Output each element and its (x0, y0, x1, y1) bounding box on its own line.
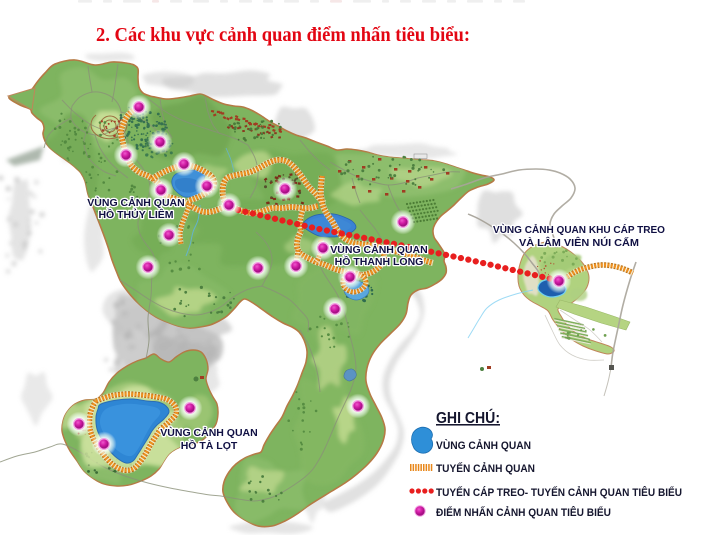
svg-text:TUYẾN CÁP TREO- TUYẾN CẢNH QUA: TUYẾN CÁP TREO- TUYẾN CẢNH QUAN TIÊU BIỂ… (436, 486, 682, 499)
svg-text:VÀ LÂM VIÊN NÚI CẤM: VÀ LÂM VIÊN NÚI CẤM (519, 236, 639, 249)
svg-text:2. Các khu vực cảnh quan điểm: 2. Các khu vực cảnh quan điểm nhấn tiêu … (96, 25, 470, 46)
svg-text:TUYẾN CẢNH QUAN: TUYẾN CẢNH QUAN (436, 462, 535, 475)
svg-text:HỒ TÀ LỌT: HỒ TÀ LỌT (181, 439, 238, 452)
svg-text:VÙNG CẢNH QUAN: VÙNG CẢNH QUAN (87, 196, 184, 209)
svg-text:VÙNG CẢNH QUAN KHU CÁP TREO: VÙNG CẢNH QUAN KHU CÁP TREO (493, 223, 665, 236)
svg-text:HỒ THANH LONG: HỒ THANH LONG (335, 255, 424, 268)
svg-text:ĐIỂM NHẤN CẢNH QUAN TIÊU BIỂU: ĐIỂM NHẤN CẢNH QUAN TIÊU BIỂU (436, 506, 611, 519)
svg-text:HỒ THỦY LIÊM: HỒ THỦY LIÊM (98, 208, 173, 221)
svg-text:VÙNG CẢNH QUAN: VÙNG CẢNH QUAN (330, 243, 427, 256)
svg-text:VÙNG CẢNH QUAN: VÙNG CẢNH QUAN (160, 426, 257, 439)
svg-text:VÙNG CẢNH QUAN: VÙNG CẢNH QUAN (436, 439, 531, 452)
svg-text:GHI CHÚ:: GHI CHÚ: (436, 409, 500, 427)
